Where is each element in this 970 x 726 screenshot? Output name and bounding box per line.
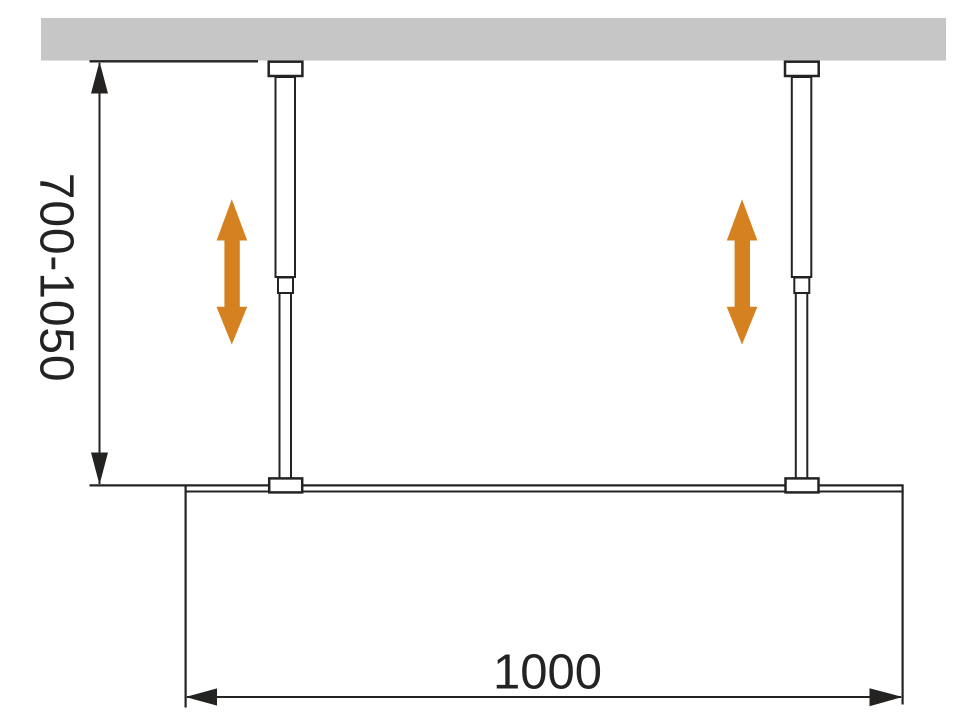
svg-text:1000: 1000 xyxy=(493,646,602,700)
svg-text:700-1050: 700-1050 xyxy=(30,173,83,383)
